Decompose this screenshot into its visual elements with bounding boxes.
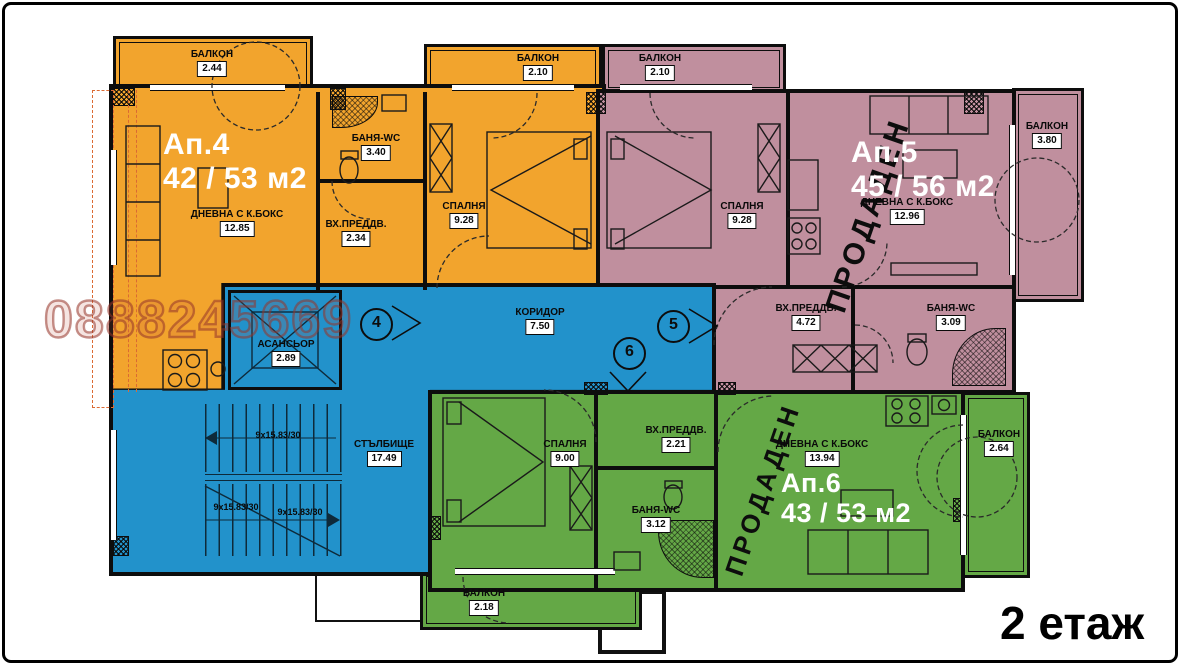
room-label-ap4-bath: БАНЯ-WC 3.40 [352, 132, 400, 161]
apartment-area: 42 / 53 м2 [163, 162, 307, 196]
room-name: ВХ.ПРЕДДВ. [775, 303, 836, 314]
room-name: БАНЯ-WC [352, 133, 400, 144]
room-area-value: 9.28 [727, 213, 756, 229]
room-name: БАЛКОН [1026, 121, 1068, 132]
room-name: ДНЕВНА С К.БОКС [776, 439, 869, 450]
room-area-value: 2.10 [523, 65, 552, 81]
room-label-ap5-bedroom: СПАЛНЯ 9.28 [720, 200, 763, 229]
room-name: БАЛКОН [191, 49, 233, 60]
stair-flight-text: 9x15.83/30 [277, 507, 322, 517]
room-label-ap6-bath: БАНЯ-WC 3.12 [632, 504, 680, 533]
room-label-ap4-bedroom: СПАЛНЯ 9.28 [442, 200, 485, 229]
room-area-value: 2.21 [661, 437, 690, 453]
room-label-staircase: СТЪЛБИЩЕ 17.49 [354, 438, 414, 467]
kitchen-stove-ap6 [886, 396, 956, 426]
wardrobe-ap5-bedroom [758, 124, 780, 192]
room-area-value: 7.50 [525, 319, 554, 335]
room-area-value: 3.80 [1032, 133, 1061, 149]
apartment-name: Ап.5 [851, 136, 995, 170]
room-label-ap4-living: ДНЕВНА С К.БОКС 12.85 [191, 208, 284, 237]
bed-ap6 [443, 398, 545, 526]
room-area-value: 9.00 [550, 451, 579, 467]
phone-watermark: 0888245669 [44, 290, 353, 350]
stair-flight-label: 9x15.83/30 [255, 430, 300, 442]
apartment-name: Ап.4 [163, 128, 307, 162]
apartment-title-ap6: Ап.6 43 / 53 м2 [781, 468, 911, 528]
room-area-value: 2.64 [984, 441, 1013, 457]
room-label-ap6-balcony-right: БАЛКОН 2.64 [978, 428, 1020, 457]
wardrobe-ap5-hall [793, 345, 877, 372]
room-label-ap5-entry: ВХ.ПРЕДДВ. 4.72 [775, 302, 836, 331]
room-label-ap6-living: ДНЕВНА С К.БОКС 13.94 [776, 438, 869, 467]
stair-flight-label: 9x15.83/30 [277, 507, 322, 519]
apartment-area: 45 / 56 м2 [851, 170, 995, 204]
room-area-value: 2.18 [469, 600, 498, 616]
room-name: БАЛКОН [463, 588, 505, 599]
room-name: КОРИДОР [515, 307, 564, 318]
room-label-corridor: КОРИДОР 7.50 [515, 306, 564, 335]
room-area-value: 9.28 [449, 213, 478, 229]
unit-marker-4: 4 [360, 308, 393, 341]
room-label-ap6-bedroom: СПАЛНЯ 9.00 [543, 438, 586, 467]
apartment-area: 43 / 53 м2 [781, 498, 911, 528]
room-name: БАЛКОН [517, 53, 559, 64]
room-name: ДНЕВНА С К.БОКС [191, 209, 284, 220]
wardrobe-ap4-bedroom [430, 124, 452, 192]
room-area-value: 4.72 [791, 315, 820, 331]
apartment-title-ap4: Ап.4 42 / 53 м2 [163, 128, 307, 195]
room-label-ap4-balcony-left: БАЛКОН 2.44 [191, 48, 233, 77]
room-name: БАЛКОН [639, 53, 681, 64]
bed-ap5 [607, 132, 711, 249]
stair-direction-lines [205, 438, 340, 556]
floor-title: 2 етаж [1000, 596, 1144, 650]
apartment-name: Ап.6 [781, 468, 911, 498]
stair-flight-text: 9x15.83/30 [255, 430, 300, 440]
room-area-value: 2.10 [645, 65, 674, 81]
room-label-ap5-balcony-right: БАЛКОН 3.80 [1026, 120, 1068, 149]
room-label-ap4-entry: ВХ.ПРЕДДВ. 2.34 [325, 218, 386, 247]
room-label-ap6-entry: ВХ.ПРЕДДВ. 2.21 [645, 424, 706, 453]
bed-ap4 [487, 132, 591, 249]
unit-marker-6: 6 [613, 337, 646, 370]
room-name: ВХ.ПРЕДДВ. [325, 219, 386, 230]
room-name: СПАЛНЯ [720, 201, 763, 212]
room-label-ap5-balcony-top: БАЛКОН 2.10 [639, 52, 681, 81]
room-area-value: 12.85 [219, 221, 254, 237]
stair-flight-text: 9x15.83/30 [213, 502, 258, 512]
toilet-ap5 [907, 334, 927, 365]
stair-flight-label: 9x15.83/30 [213, 502, 258, 514]
room-label-ap6-balcony-bottom: БАЛКОН 2.18 [463, 587, 505, 616]
room-name: СТЪЛБИЩЕ [354, 439, 414, 450]
room-area-value: 3.40 [361, 145, 390, 161]
room-name: БАНЯ-WC [632, 505, 680, 516]
room-area-value: 12.96 [889, 209, 924, 225]
room-name: БАНЯ-WC [927, 303, 975, 314]
room-name: ВХ.ПРЕДДВ. [645, 425, 706, 436]
room-name: СПАЛНЯ [442, 201, 485, 212]
room-area-value: 3.09 [936, 315, 965, 331]
room-area-value: 13.94 [804, 451, 839, 467]
room-area-value: 2.44 [197, 61, 226, 77]
unit-marker-5: 5 [657, 310, 690, 343]
room-name: БАЛКОН [978, 429, 1020, 440]
kitchen-stove-ap5 [788, 160, 820, 254]
room-area-value: 2.34 [341, 231, 370, 247]
room-name: СПАЛНЯ [543, 439, 586, 450]
floorplan-page: БАЛКОН 2.44 БАЛКОН 2.10 БАЛКОН 2.10 ДНЕВ… [0, 0, 1180, 665]
apartment-title-ap5: Ап.5 45 / 56 м2 [851, 136, 995, 203]
kitchen-stove-ap4 [163, 350, 225, 390]
room-area-value: 3.12 [641, 517, 670, 533]
room-area-value: 17.49 [366, 451, 401, 467]
room-area-value: 2.89 [271, 351, 300, 367]
room-label-ap5-bath: БАНЯ-WC 3.09 [927, 302, 975, 331]
room-label-ap4-balcony-right: БАЛКОН 2.10 [517, 52, 559, 81]
wardrobe-ap6-bedroom [570, 466, 592, 530]
